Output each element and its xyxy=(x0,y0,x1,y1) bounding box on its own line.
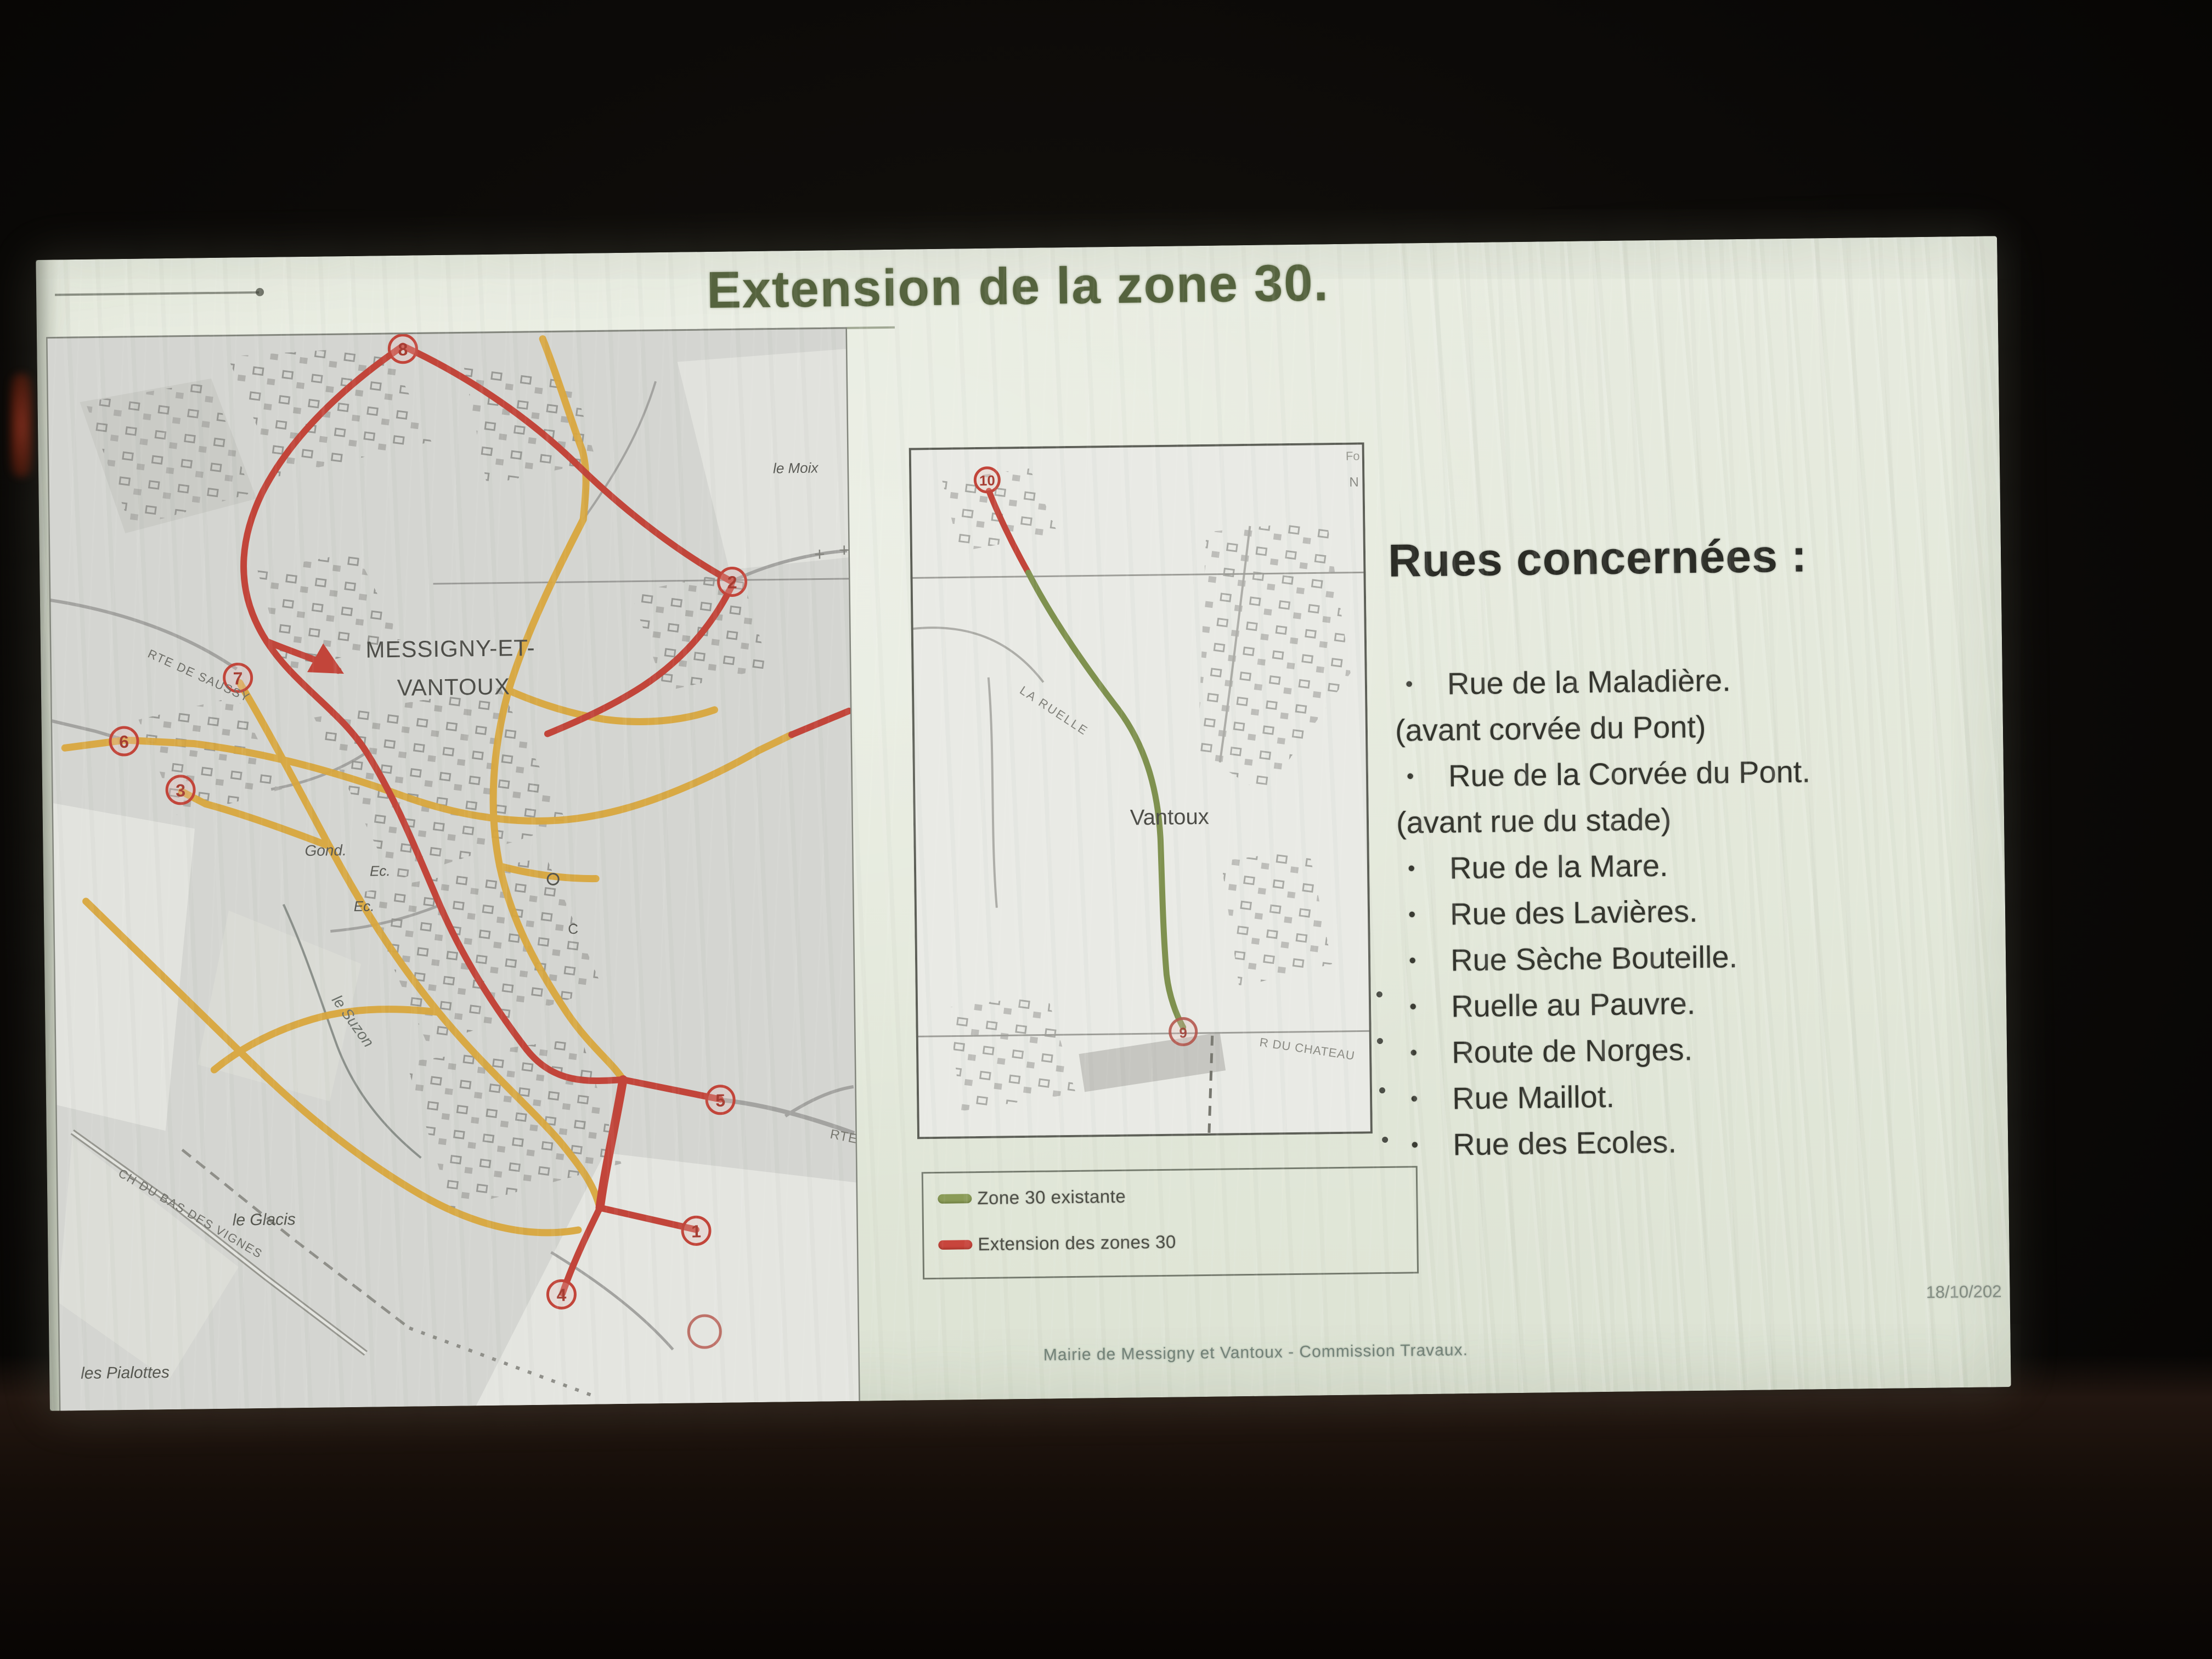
rue-text: Rue Sèche Bouteille. xyxy=(1451,939,1738,977)
legend-label: Extension des zones 30 xyxy=(978,1232,1176,1255)
list-item: •Rue Maillot. xyxy=(1393,1069,2008,1122)
photo-of-projected-slide: Extension de la zone 30. xyxy=(0,0,2212,1659)
list-item: •Route de Norges. xyxy=(1392,1023,2007,1076)
bullet-icon: • xyxy=(1411,1122,1419,1168)
slide-date: 18/10/202 xyxy=(1926,1282,2001,1302)
list-item: •Ruelle au Pauvre. xyxy=(1392,977,2007,1030)
slide-footer-credit: Mairie de Messigny et Vantoux - Commissi… xyxy=(1043,1342,1329,1364)
rue-text: Rue des Lavières. xyxy=(1450,894,1698,932)
list-item: •Rue de la Maladière. xyxy=(1387,654,2002,708)
marker-6: 6 xyxy=(119,732,129,752)
rue-text: Rue de la Corvée du Pont. xyxy=(1448,754,1811,793)
label-messigny-1: MESSIGNY-ET- xyxy=(365,635,535,663)
bullet-icon: • xyxy=(1410,1076,1418,1122)
bullet-icon: • xyxy=(1409,938,1417,984)
list-item: •Rue Sèche Bouteille. xyxy=(1391,930,2006,984)
legend-box: Zone 30 existante Extension des zones 30 xyxy=(922,1166,1419,1279)
list-item: •Rue de la Mare. xyxy=(1390,838,2005,892)
label-fo: Fo xyxy=(1346,449,1360,462)
label-ec1: Ec. xyxy=(370,862,391,879)
list-item: •Rue de la Corvée du Pont. xyxy=(1389,746,2004,800)
presentation-slide: Extension de la zone 30. xyxy=(36,236,2011,1411)
rues-heading: Rues concernées : xyxy=(1388,529,1808,588)
bullet-icon: • xyxy=(1408,845,1415,891)
label-le-moix: le Moix xyxy=(773,460,819,477)
fold-dot-4 xyxy=(1382,1137,1388,1143)
rue-text: Route de Norges. xyxy=(1452,1032,1693,1069)
bullet-icon: • xyxy=(1405,661,1413,707)
fold-dot-1 xyxy=(1376,991,1383,997)
map-vantoux: 10 9 Vantoux LA RUELLE R DU CHATEAU Fo N xyxy=(909,442,1373,1139)
rue-text: (avant rue du stade) xyxy=(1396,802,1672,840)
marker-8: 8 xyxy=(398,340,408,359)
fold-dot-3 xyxy=(1379,1087,1385,1093)
label-les-pialottes: les Pialottes xyxy=(81,1363,170,1383)
marker-3: 3 xyxy=(176,781,185,800)
list-item: •(avant rue du stade) xyxy=(1390,792,2005,846)
bullet-icon: • xyxy=(1406,753,1414,799)
label-messigny-2: VANTOUX xyxy=(397,673,511,701)
rue-text: Rue de la Maladière. xyxy=(1447,663,1731,701)
marker-10: 10 xyxy=(979,472,995,489)
marker-9: 9 xyxy=(1179,1024,1187,1041)
map-cross-2: + xyxy=(839,540,850,561)
rues-list: •Rue de la Maladière. •(avant corvée du … xyxy=(1387,654,2008,1169)
rue-text: Rue de la Mare. xyxy=(1449,848,1668,885)
marker-2: 2 xyxy=(727,572,737,592)
rue-text: Rue des Ecoles. xyxy=(1453,1125,1677,1162)
zone30-existing-line-icon xyxy=(938,1194,972,1204)
bullet-icon: • xyxy=(1409,984,1417,1030)
legend-row-extension: Extension des zones 30 xyxy=(938,1231,1176,1256)
label-vantoux: Vantoux xyxy=(1130,805,1209,830)
red-reflection-glow xyxy=(10,373,33,477)
list-item: •Rue des Ecoles. xyxy=(1393,1115,2008,1169)
marker-1: 1 xyxy=(691,1221,701,1241)
list-item: •Rue des Lavières. xyxy=(1391,884,2006,938)
legend-label: Zone 30 existante xyxy=(977,1186,1126,1209)
slide-title: Extension de la zone 30. xyxy=(706,253,1329,320)
map-cross-1: + xyxy=(814,544,825,565)
zone30-extension-line-icon xyxy=(938,1240,972,1250)
fold-dot-2 xyxy=(1377,1038,1383,1044)
label-le-glacis: le Glacis xyxy=(233,1210,296,1229)
marker-5: 5 xyxy=(715,1091,725,1110)
rue-text: Ruelle au Pauvre. xyxy=(1451,986,1696,1023)
rue-text: Rue Maillot. xyxy=(1452,1079,1615,1116)
slide-top-rule xyxy=(55,291,259,296)
label-n: N xyxy=(1349,475,1359,489)
map-messigny: 8 2 7 6 3 5 1 4 MESSIGNY-ET- VANTOUX RTE… xyxy=(46,327,860,1411)
map-symbol-c: C xyxy=(568,921,578,937)
bullet-icon: • xyxy=(1410,1030,1418,1076)
list-item: •(avant corvée du Pont) xyxy=(1388,700,2003,754)
label-ec2: Ec. xyxy=(354,898,375,914)
bullet-icon: • xyxy=(1408,891,1416,938)
rue-text: (avant corvée du Pont) xyxy=(1395,709,1706,748)
label-gond: Gond. xyxy=(304,842,347,859)
legend-row-existing: Zone 30 existante xyxy=(938,1186,1126,1210)
slide-top-rule-dot xyxy=(256,288,264,296)
marker-4: 4 xyxy=(556,1285,566,1305)
